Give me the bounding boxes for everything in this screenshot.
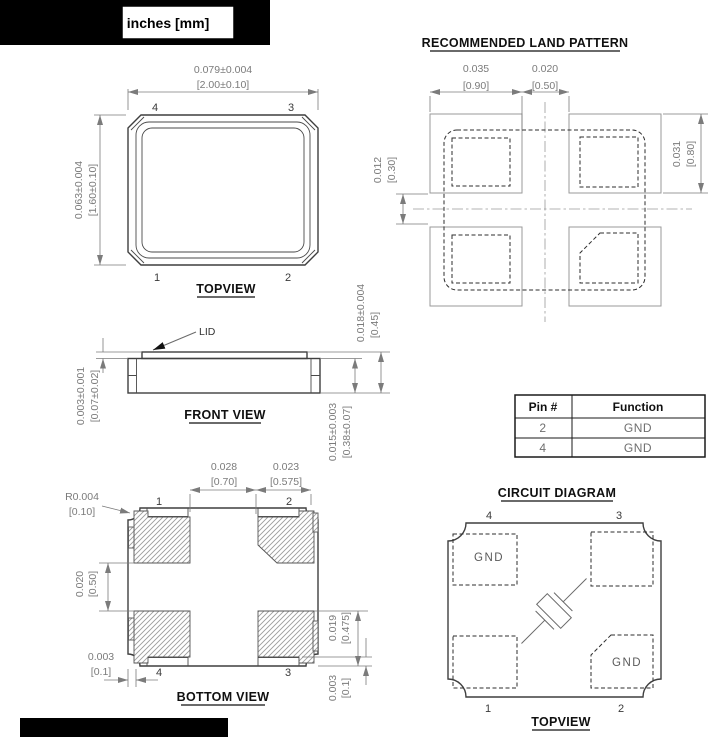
dim-row-gap-inches: 0.012 <box>372 157 384 183</box>
gnd-label-top-left: GND <box>474 552 504 564</box>
pin-label-1: 1 <box>156 496 162 508</box>
table-row: 2 GND <box>539 421 652 435</box>
dim-width-mm: [2.00±0.10] <box>197 79 250 91</box>
cell-pin-function: GND <box>624 421 652 435</box>
pin-label-2: 2 <box>286 496 292 508</box>
land-pad-bottom-right <box>569 227 661 306</box>
dim-body-height-inches: 0.015±0.003 <box>327 403 339 461</box>
dim-row-gap-mm: [0.30] <box>386 157 398 183</box>
dim-edge-margin-mm: [0.1] <box>91 666 112 678</box>
col-header-function: Function <box>613 400 664 414</box>
dim-pad-gap-inches: 0.020 <box>532 63 558 75</box>
mechanical-drawing: inches [mm] 0.079±0.004 [2.00±0.10] 0.06… <box>0 0 728 737</box>
redaction-bar-bottom <box>20 718 228 737</box>
end-cap-lines <box>128 359 320 394</box>
land-pad-top-right <box>569 114 661 193</box>
pin-label-1: 1 <box>485 703 491 715</box>
dim-edge-margin-inches: 0.003 <box>88 651 114 663</box>
crystal-plates-and-leads <box>512 569 595 652</box>
crystal-symbol <box>509 566 598 655</box>
dim-pad-width-mm: [0.90] <box>463 80 489 92</box>
table-row: 4 GND <box>539 441 652 455</box>
cell-pin-number: 4 <box>539 441 546 455</box>
dim-pad-height-mm: [0.80] <box>685 141 697 167</box>
lid-label: LID <box>199 326 216 338</box>
land-pattern-title: RECOMMENDED LAND PATTERN <box>422 36 629 50</box>
pad-dashed-bottom-left <box>453 636 517 688</box>
package-outline <box>448 523 661 697</box>
dim-bottom-margin-inches: 0.003 <box>327 675 339 701</box>
cell-pin-number: 2 <box>539 421 546 435</box>
pin-label-2: 2 <box>618 703 624 715</box>
dim-height-mm: [1.60±0.10] <box>87 164 99 217</box>
dim-pad-width-mm: [0.575] <box>270 476 302 488</box>
drawing-sheet: inches [mm] 0.079±0.004 [2.00±0.10] 0.06… <box>0 0 728 737</box>
castellation-strip <box>129 618 135 640</box>
lid-seam-outer <box>136 122 310 258</box>
dim-bottom-margin-mm: [0.1] <box>340 678 352 699</box>
land-pattern-drawing: RECOMMENDED LAND PATTERN 0.035 [0.90] 0.… <box>372 36 708 322</box>
dim-pad-height-mm: [0.475] <box>340 612 352 644</box>
header-bar: inches [mm] <box>0 0 270 45</box>
pad-1-hatched <box>134 511 190 563</box>
dim-pad-pitch-inches: 0.028 <box>211 461 237 473</box>
dim-pad-gap-mm: [0.50] <box>87 571 99 597</box>
pin-label-4: 4 <box>152 102 158 114</box>
pin-label-3: 3 <box>616 510 622 522</box>
pin-function-table: Pin # Function 2 GND 4 GND <box>515 395 705 457</box>
dim-lid-thickness-mm: [0.07±0.02] <box>89 370 101 423</box>
gnd-label-bottom-right: GND <box>612 657 642 669</box>
pad-3-hatched <box>258 611 314 663</box>
dim-pad-height-inches: 0.031 <box>671 141 683 167</box>
top-view-drawing: 0.079±0.004 [2.00±0.10] 0.063±0.004 [1.6… <box>73 64 318 297</box>
pad-4-hatched <box>134 611 190 663</box>
bottom-view-title: BOTTOM VIEW <box>177 690 270 704</box>
bottom-view-drawing: 0.028 [0.70] 0.023 [0.575] R0.004 [0.10]… <box>65 461 372 705</box>
dim-pad-gap-mm: [0.50] <box>532 80 558 92</box>
units-label: inches [mm] <box>127 15 209 31</box>
pin-label-4: 4 <box>156 667 162 679</box>
pin-label-4: 4 <box>486 510 492 522</box>
dim-height-inches: 0.063±0.004 <box>73 161 85 219</box>
cell-pin-function: GND <box>624 441 652 455</box>
dim-total-height-inches: 0.018±0.004 <box>355 284 367 342</box>
lid-shape <box>142 352 307 359</box>
dim-pad-width-inches: 0.023 <box>273 461 299 473</box>
pad-dashed-top-right <box>591 532 653 586</box>
radius-leader-line <box>102 506 130 513</box>
dim-width-inches: 0.079±0.004 <box>194 64 252 76</box>
front-view-drawing: LID 0.003±0.001 [0.07±0.02] 0.018±0.004 … <box>75 284 390 461</box>
castellation-strip <box>129 527 135 548</box>
lid-leader-line <box>153 332 196 350</box>
dim-body-height-mm: [0.38±0.07] <box>341 406 353 459</box>
castellation-strip <box>313 513 318 532</box>
circuit-topview-subtitle: TOPVIEW <box>531 715 591 729</box>
circuit-diagram-title: CIRCUIT DIAGRAM <box>498 486 616 500</box>
lid-seam-inner <box>142 128 304 252</box>
front-view-title: FRONT VIEW <box>184 408 265 422</box>
dim-pad-gap-inches: 0.020 <box>74 571 86 597</box>
pin-label-3: 3 <box>285 667 291 679</box>
circuit-diagram-drawing: CIRCUIT DIAGRAM GND GND 4 3 1 2 TOPVIEW <box>448 486 661 730</box>
castellation-strip <box>313 621 318 651</box>
top-view-title: TOPVIEW <box>196 282 256 296</box>
dim-corner-radius-mm: [0.10] <box>69 506 95 518</box>
pin-label-3: 3 <box>288 102 294 114</box>
dim-lid-thickness-inches: 0.003±0.001 <box>75 367 87 425</box>
dim-total-height-mm: [0.45] <box>369 312 381 338</box>
corner-castellation-lines <box>131 117 315 263</box>
col-header-pin: Pin # <box>529 400 558 414</box>
dim-pad-width-inches: 0.035 <box>463 63 489 75</box>
dim-pad-pitch-mm: [0.70] <box>211 476 237 488</box>
dim-pad-height-inches: 0.019 <box>327 615 339 641</box>
pad-2-hatched-chamfer <box>258 511 314 563</box>
package-outline <box>128 115 318 265</box>
pin-label-1: 1 <box>154 272 160 284</box>
body-shape <box>128 359 320 394</box>
pin-label-2: 2 <box>285 272 291 284</box>
dim-corner-radius-inches: R0.004 <box>65 491 99 503</box>
